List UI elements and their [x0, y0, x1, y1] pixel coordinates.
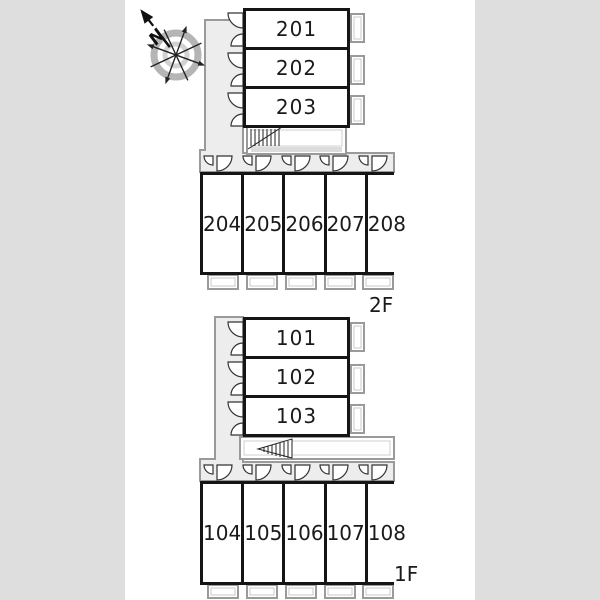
room-105: 105 — [241, 484, 282, 582]
room-208: 208 — [365, 175, 406, 272]
floor-label-1f: 1F — [394, 562, 418, 586]
room-204: 204 — [203, 175, 241, 272]
balconies-2f-side — [351, 14, 364, 124]
floorplan-canvas: N 201 202 203 204 205 206 207 208 2F 101… — [0, 0, 600, 600]
stairs-1f-icon — [240, 437, 394, 459]
balconies-1f-bottom — [208, 585, 393, 598]
room-107: 107 — [324, 484, 365, 582]
room-106: 106 — [282, 484, 323, 582]
floor-label-2f: 2F — [369, 293, 393, 317]
room-207: 207 — [324, 175, 365, 272]
block-1f-corridor-rooms: 101 102 103 — [243, 317, 350, 437]
room-103: 103 — [246, 395, 347, 434]
stairs-2f-icon — [247, 126, 346, 154]
room-206: 206 — [282, 175, 323, 272]
block-2f-row-rooms: 204 205 206 207 208 — [200, 172, 394, 275]
room-201: 201 — [246, 11, 347, 47]
balconies-1f-side — [351, 323, 364, 433]
room-203: 203 — [246, 86, 347, 125]
room-104: 104 — [203, 484, 241, 582]
room-101: 101 — [246, 320, 347, 356]
block-1f-row-rooms: 104 105 106 107 108 — [200, 481, 394, 585]
compass-north-icon: N — [136, 6, 206, 85]
room-102: 102 — [246, 356, 347, 395]
block-2f-corridor-rooms: 201 202 203 — [243, 8, 350, 128]
balconies-2f-bottom — [208, 275, 393, 289]
room-205: 205 — [241, 175, 282, 272]
room-202: 202 — [246, 47, 347, 86]
